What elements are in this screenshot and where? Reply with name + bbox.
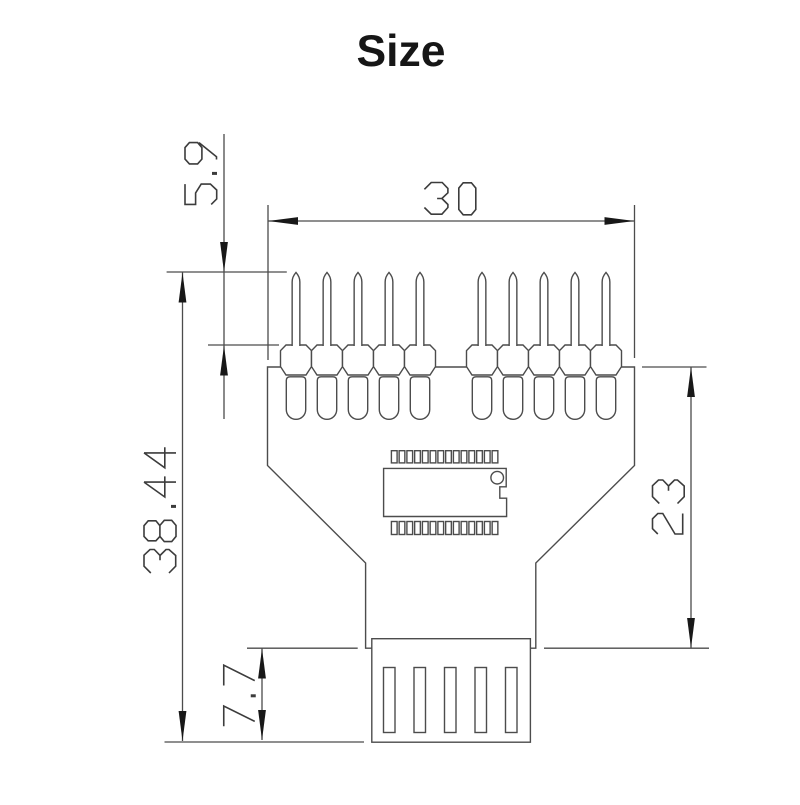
svg-text:Size: Size [356,27,445,76]
